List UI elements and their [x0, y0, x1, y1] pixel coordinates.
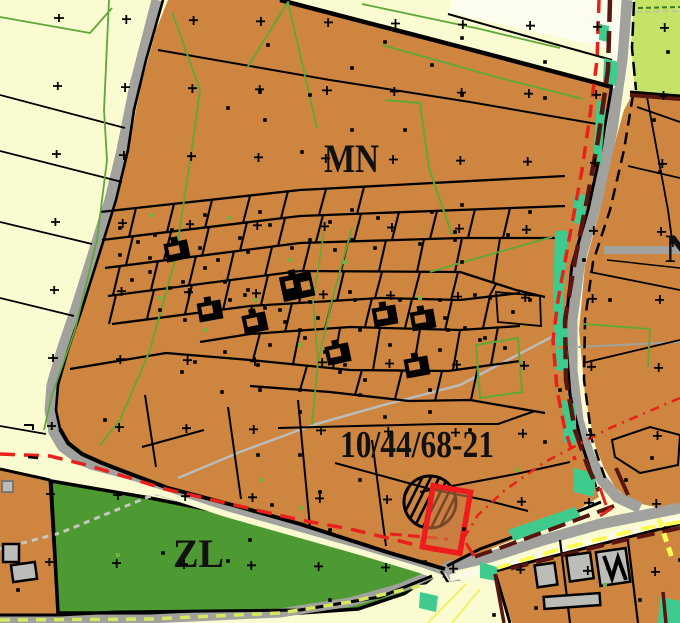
- svg-text:MN: MN: [324, 136, 379, 181]
- svg-text:N: N: [665, 226, 680, 271]
- svg-text:ZL: ZL: [173, 531, 224, 576]
